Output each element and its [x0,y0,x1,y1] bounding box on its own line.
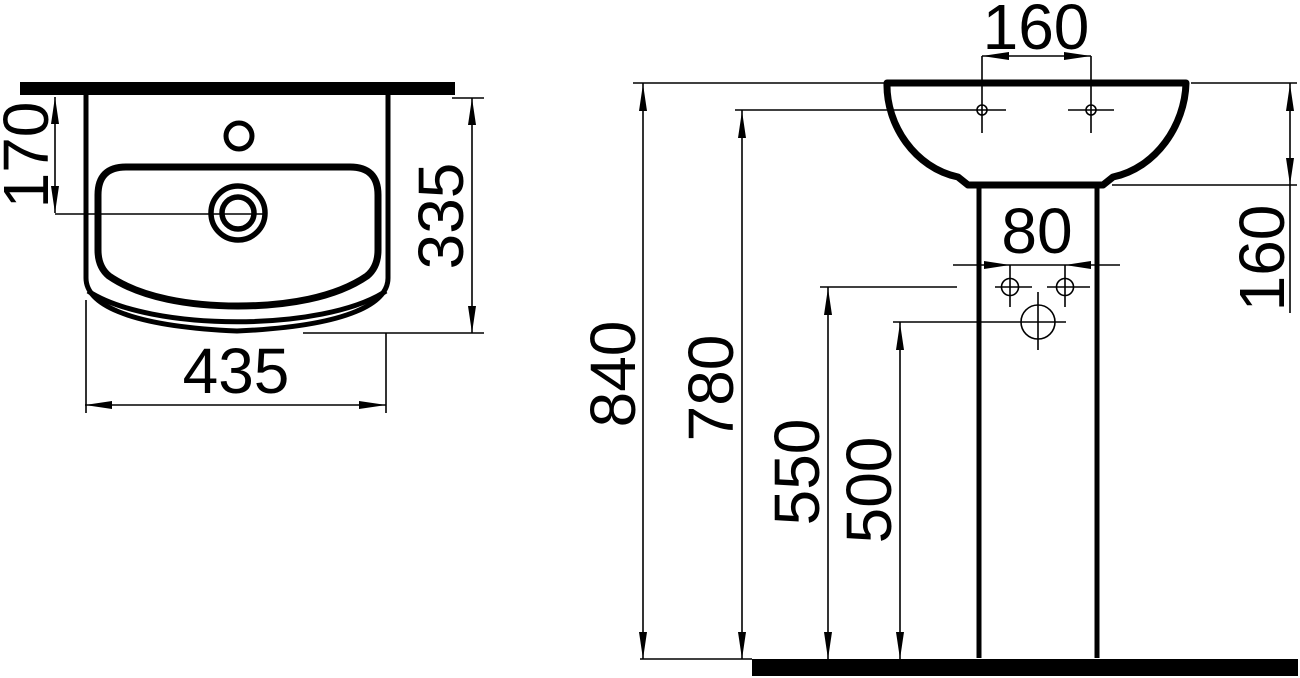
dim-label-160-right: 160 [1226,205,1298,312]
arrow-down-icon [639,632,647,659]
dim-label-435: 435 [183,335,290,407]
dim-label-780: 780 [675,335,747,442]
washbasin-dimension-drawing: 170 335 435 [0,0,1300,678]
dim-label-80: 80 [1001,195,1072,267]
dim-label-335: 335 [405,163,477,270]
dim-siphon-height: 500 [833,322,1066,659]
arrow-down-icon [1286,158,1294,185]
drawing-page: 170 335 435 [0,0,1300,678]
arrow-up-icon [824,288,832,315]
overflow-hole [226,123,252,149]
dim-fixing-hole-height: 780 [675,110,1006,659]
pedestal-holes [995,265,1090,350]
arrow-up-icon [468,98,476,125]
dim-wall-to-waste: 170 [0,97,62,213]
dim-label-840: 840 [577,321,649,428]
arrow-up-icon [1286,84,1294,111]
arrow-left-icon [85,401,112,409]
waste-hole-inner [222,197,254,229]
waste-hole-outer [211,186,265,240]
dim-label-170: 170 [0,102,62,209]
plan-view: 170 335 435 [0,82,484,413]
arrow-down-icon [738,632,746,659]
dim-label-550: 550 [761,419,833,526]
dim-fixing-hole-spacing: 160 [982,0,1091,63]
arrow-up-icon [738,111,746,138]
basin-outer-outline [86,95,388,331]
floor-section-bar [752,659,1298,676]
dim-label-160-top: 160 [983,0,1090,63]
arrow-down-icon [896,632,904,659]
dim-label-500: 500 [833,437,905,544]
arrow-right-icon [359,401,386,409]
arrow-up-icon [896,323,904,350]
wall-section-bar [20,82,455,95]
arrow-up-icon [639,84,647,111]
front-view: 160 160 80 [577,0,1298,676]
arrow-down-icon [824,632,832,659]
dim-depth: 335 [303,98,484,333]
basin-bowl-outline [887,83,1186,185]
arrow-down-icon [468,306,476,333]
